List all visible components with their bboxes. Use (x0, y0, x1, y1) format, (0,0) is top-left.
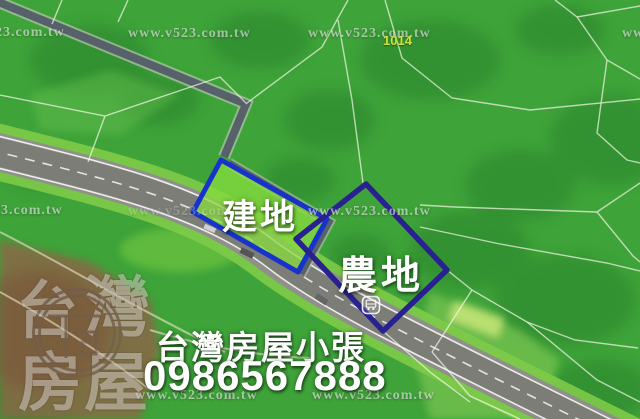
site-watermark: www.v523.com.tw (128, 26, 251, 42)
phone-number-text: 0986567888 (143, 352, 387, 400)
aerial-map-image: www.v523.com.tw www.v523.com.tw www.v523… (0, 0, 640, 419)
site-watermark: www.v523.com.tw (622, 26, 640, 42)
parcel-number-label: 1014 (383, 33, 412, 48)
building-land-label: 建地 (222, 189, 298, 240)
agency-logo-watermark: 台 灣 房 屋 (8, 254, 160, 414)
farm-land-label: 農地 (338, 245, 424, 301)
logo-emblem-motif (8, 254, 160, 414)
site-watermark: www.v523.com.tw (0, 25, 65, 41)
site-watermark: www.v523.com.tw (0, 203, 63, 219)
site-watermark: www.v523.com.tw (308, 204, 431, 220)
site-watermark: www.v523.com.tw (308, 26, 431, 42)
